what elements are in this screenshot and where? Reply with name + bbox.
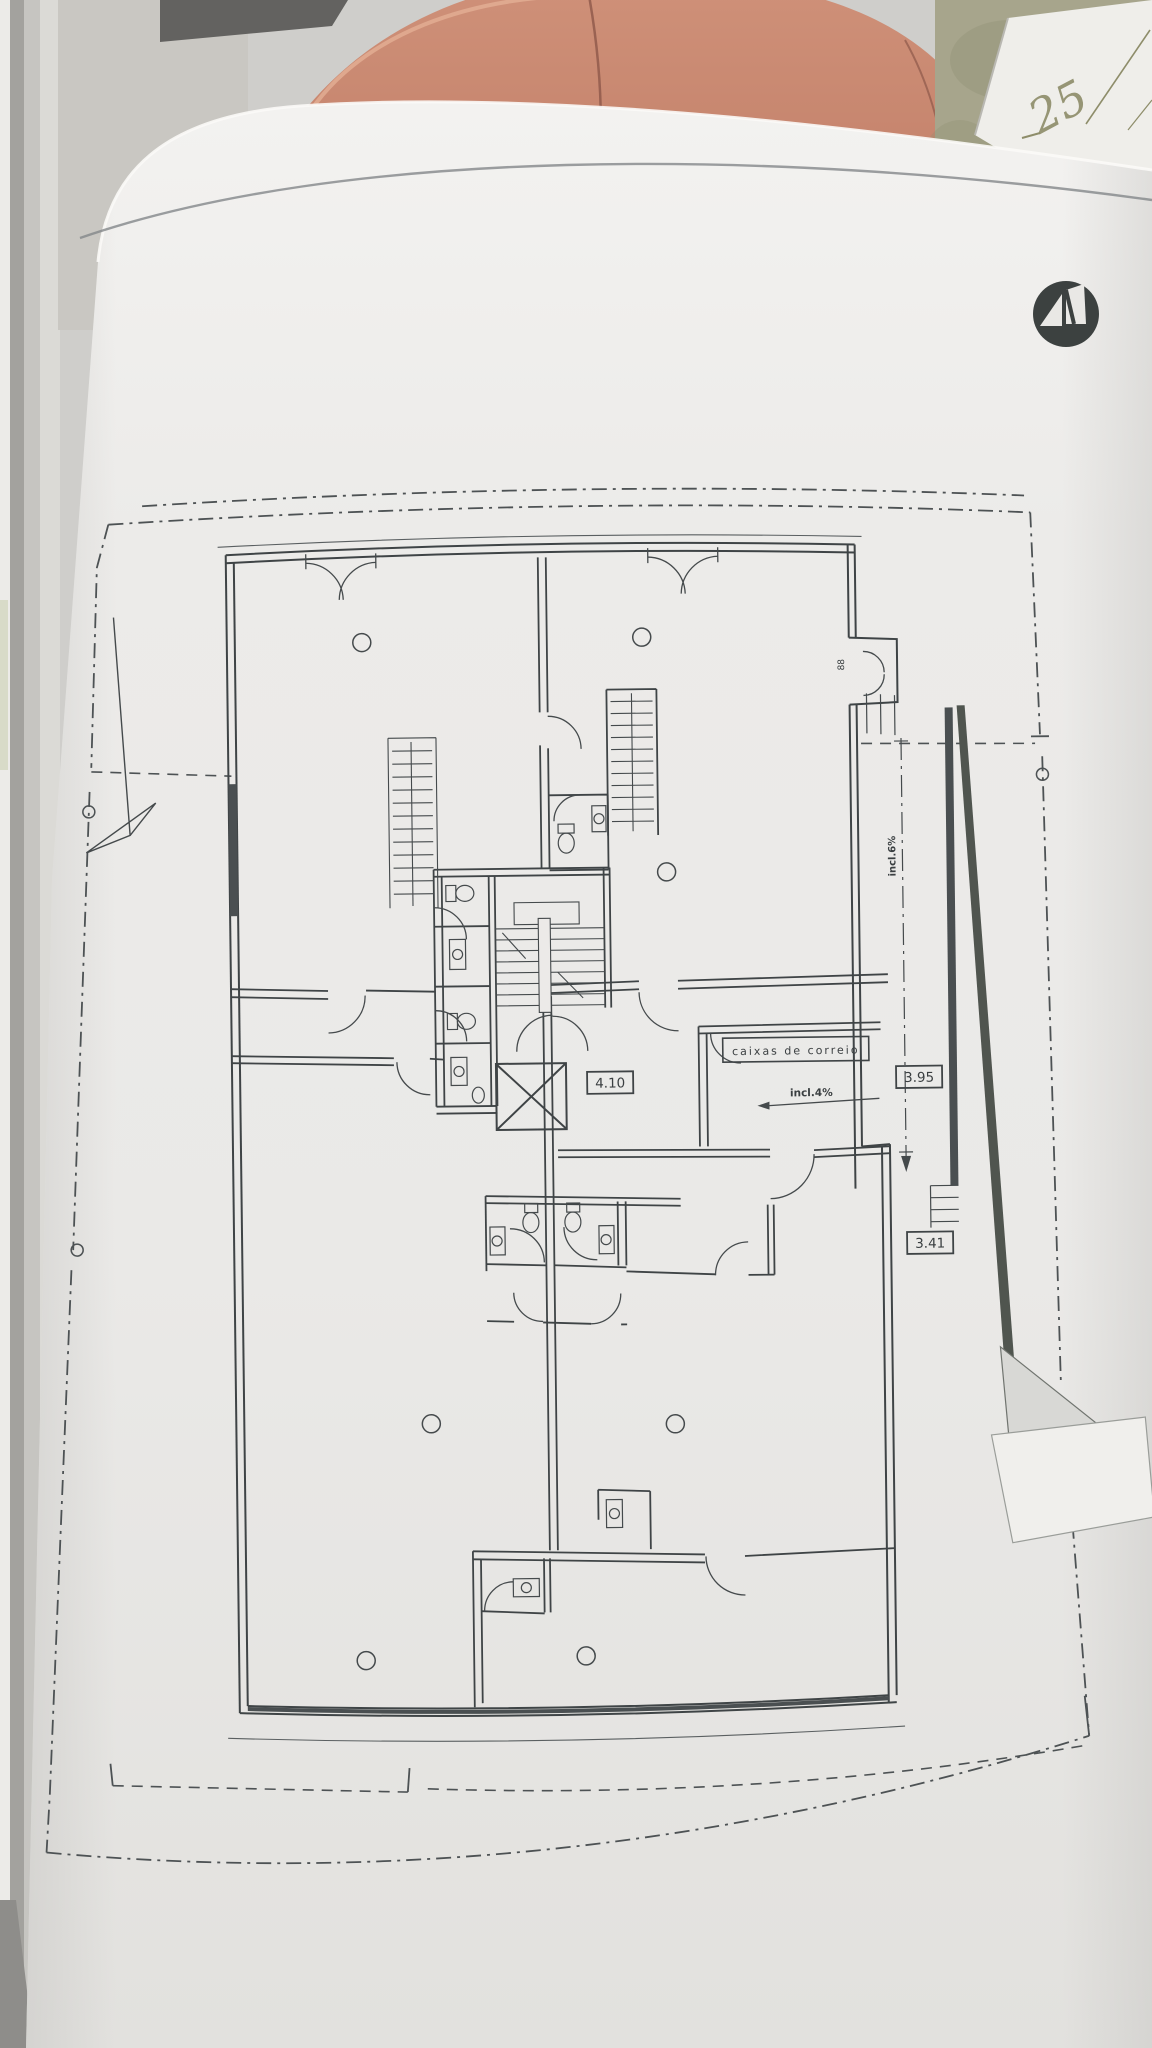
entry-note-label: 88 xyxy=(837,659,847,671)
dimension-ramp-lower: 3.41 xyxy=(915,1235,945,1251)
paper-sheet xyxy=(26,102,1152,2048)
ramp-slope-label: incl.6% xyxy=(887,836,898,877)
floor-plan-photo-svg: 25 xyxy=(0,0,1152,2048)
dimension-ramp-upper: 3.95 xyxy=(904,1070,934,1086)
dimension-hall-width: 4.10 xyxy=(595,1075,625,1091)
architect-logo-icon xyxy=(1033,281,1099,347)
photo-of-floor-plan: 25 xyxy=(0,0,1152,2048)
mailboxes-label: caixas de correio xyxy=(732,1044,860,1059)
hall-slope-label: incl.4% xyxy=(790,1087,833,1100)
